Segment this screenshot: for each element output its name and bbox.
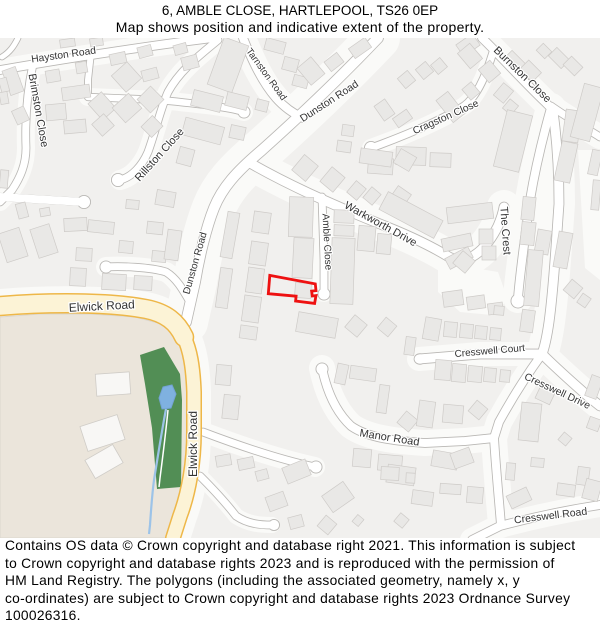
svg-text:Elwick Road: Elwick Road xyxy=(186,411,200,477)
